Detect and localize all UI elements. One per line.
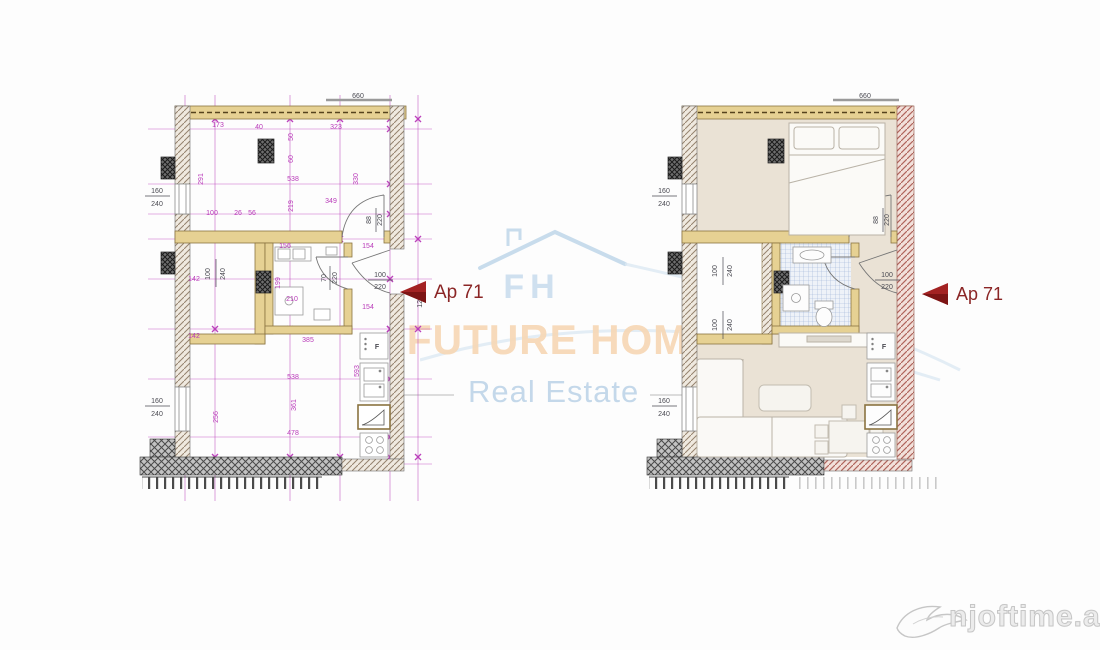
svg-text:142: 142 [188, 276, 200, 283]
svg-text:60: 60 [288, 155, 295, 163]
svg-text:100: 100 [881, 272, 893, 279]
svg-text:F: F [375, 344, 380, 351]
svg-text:100: 100 [205, 268, 212, 280]
watermark-monogram: FH [503, 268, 560, 306]
bathroom-fixtures [275, 247, 337, 320]
svg-text:323: 323 [330, 124, 342, 131]
svg-text:154: 154 [362, 304, 374, 311]
svg-text:160: 160 [151, 188, 163, 195]
svg-text:199: 199 [275, 277, 282, 289]
svg-text:100: 100 [712, 265, 719, 277]
tv [807, 336, 851, 342]
svg-text:210: 210 [286, 296, 298, 303]
bed [789, 123, 885, 235]
svg-text:100: 100 [206, 210, 218, 217]
svg-text:220: 220 [881, 284, 893, 291]
floorplan-image: FH FUTURE HOME Real Estate [0, 0, 1100, 650]
svg-text:330: 330 [353, 173, 360, 185]
watermark-tagline: Real Estate [468, 374, 639, 410]
svg-text:154: 154 [362, 243, 374, 250]
svg-text:660: 660 [859, 93, 871, 100]
svg-text:349: 349 [325, 198, 337, 205]
svg-text:240: 240 [151, 201, 163, 208]
svg-text:240: 240 [658, 201, 670, 208]
svg-text:291: 291 [198, 173, 205, 185]
svg-text:538: 538 [287, 176, 299, 183]
svg-text:240: 240 [658, 411, 670, 418]
svg-text:88: 88 [366, 216, 373, 224]
right-plan-svg: 660 160 240 160 240 100 240 100 240 88 2… [637, 87, 967, 527]
svg-text:26: 26 [234, 210, 242, 217]
svg-text:240: 240 [220, 268, 227, 280]
svg-text:173: 173 [212, 122, 224, 129]
left-plan-svg: 173 40 323 50 60 291 538 330 219 349 100… [130, 87, 460, 527]
svg-text:100: 100 [712, 319, 719, 331]
svg-text:220: 220 [884, 214, 891, 226]
svg-text:256: 256 [213, 411, 220, 423]
ap-arrow-right-plan [921, 283, 949, 307]
svg-text:478: 478 [287, 430, 299, 437]
svg-text:40: 40 [255, 124, 263, 131]
site-logo: njoftime.al [893, 598, 1093, 646]
svg-text:100: 100 [374, 272, 386, 279]
site-logo-text: njoftime.al [949, 600, 1100, 634]
svg-text:70: 70 [321, 274, 328, 282]
svg-text:160: 160 [658, 398, 670, 405]
svg-text:593: 593 [354, 365, 361, 377]
svg-text:50: 50 [288, 133, 295, 141]
svg-text:88: 88 [873, 216, 880, 224]
svg-text:240: 240 [727, 265, 734, 277]
svg-text:56: 56 [248, 210, 256, 217]
balcony-railing [142, 477, 322, 490]
svg-text:660: 660 [352, 93, 364, 100]
svg-text:240: 240 [151, 411, 163, 418]
ap-label-left-plan: Ap 71 [434, 282, 484, 304]
ap-label-right-plan: Ap 71 [956, 284, 1003, 305]
svg-text:538: 538 [287, 374, 299, 381]
coffee-table [759, 385, 811, 411]
svg-text:F: F [882, 344, 887, 351]
kitchen-fixtures [865, 333, 897, 457]
svg-text:240: 240 [727, 319, 734, 331]
svg-text:156: 156 [279, 243, 291, 250]
svg-text:220: 220 [377, 214, 384, 226]
svg-text:361: 361 [291, 399, 298, 411]
svg-text:219: 219 [288, 200, 295, 212]
svg-text:220: 220 [332, 272, 339, 284]
svg-text:385: 385 [302, 337, 314, 344]
svg-text:142: 142 [188, 333, 200, 340]
svg-text:160: 160 [151, 398, 163, 405]
svg-text:220: 220 [374, 284, 386, 291]
kitchen-fixtures [358, 333, 390, 457]
ap-arrow-left-plan [399, 281, 427, 305]
svg-text:160: 160 [658, 188, 670, 195]
balcony-railing [649, 477, 943, 490]
